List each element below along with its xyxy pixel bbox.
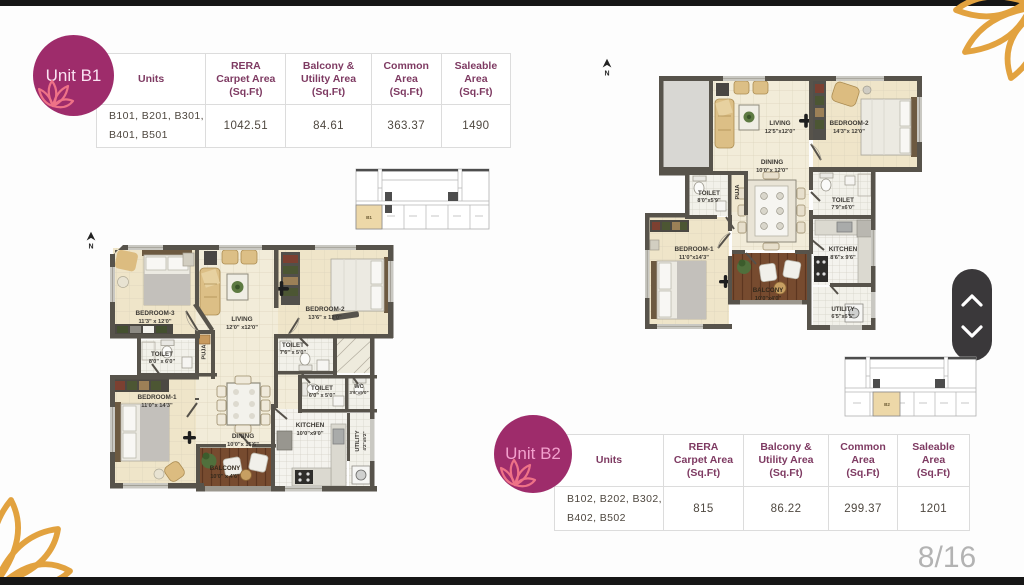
svg-text:DINING: DINING <box>232 433 254 440</box>
svg-text:BEDROOM-1: BEDROOM-1 <box>137 394 177 401</box>
svg-text:13'6" x 12'0": 13'6" x 12'0" <box>308 315 342 321</box>
svg-text:8'0"x5'9": 8'0"x5'9" <box>697 198 721 204</box>
svg-text:TOILET: TOILET <box>311 385 333 392</box>
svg-text:DINING: DINING <box>761 159 783 166</box>
svg-text:BEDROOM-2: BEDROOM-2 <box>829 120 869 127</box>
svg-text:UTILITY: UTILITY <box>355 430 361 451</box>
svg-text:10'0"x 15'6": 10'0"x 15'6" <box>227 442 259 448</box>
svg-text:BALCONY: BALCONY <box>753 287 784 294</box>
svg-text:BEDROOM-1: BEDROOM-1 <box>674 246 714 253</box>
svg-text:6'5"x6'5": 6'5"x6'5" <box>831 314 855 320</box>
svg-text:11'3" x 12'0": 11'3" x 12'0" <box>138 319 171 325</box>
svg-text:8'6"x 9'6": 8'6"x 9'6" <box>830 255 856 261</box>
svg-text:N: N <box>88 243 93 250</box>
svg-text:10'0"x4'0": 10'0"x4'0" <box>755 296 782 302</box>
svg-text:B2: B2 <box>884 402 890 407</box>
svg-text:10'0"x9'0": 10'0"x9'0" <box>296 431 323 437</box>
svg-text:TOILET: TOILET <box>151 351 173 358</box>
svg-text:10'0"x 12'0": 10'0"x 12'0" <box>756 168 788 174</box>
svg-text:N: N <box>604 70 609 77</box>
svg-text:TOILET: TOILET <box>832 197 854 204</box>
svg-text:PUJA: PUJA <box>202 345 208 360</box>
svg-text:14'3"x 12'0": 14'3"x 12'0" <box>833 129 865 135</box>
svg-text:11'0"x14'3": 11'0"x14'3" <box>679 255 709 261</box>
svg-text:KITCHEN: KITCHEN <box>296 422 325 429</box>
svg-text:6'0" x 5'0": 6'0" x 5'0" <box>309 393 336 399</box>
svg-text:7'9"x6'0": 7'9"x6'0" <box>831 205 855 211</box>
svg-text:BEDROOM-2: BEDROOM-2 <box>305 306 345 313</box>
svg-text:TOILET: TOILET <box>282 342 304 349</box>
svg-text:LIVING: LIVING <box>231 316 252 323</box>
svg-text:BEDROOM-3: BEDROOM-3 <box>135 310 175 317</box>
svg-text:3'9"x5'0": 3'9"x5'0" <box>349 390 368 395</box>
svg-text:12'0" x12'0": 12'0" x12'0" <box>226 325 258 331</box>
svg-text:KITCHEN: KITCHEN <box>829 246 858 253</box>
svg-text:10'0" x 4'6": 10'0" x 4'6" <box>210 474 240 480</box>
svg-text:7'6" x 5'0": 7'6" x 5'0" <box>280 350 307 356</box>
svg-text:TOILET: TOILET <box>698 190 720 197</box>
svg-text:B1: B1 <box>366 215 372 220</box>
svg-text:PUJA: PUJA <box>735 185 741 200</box>
svg-text:8'0" x 6'0": 8'0" x 6'0" <box>149 359 176 365</box>
svg-text:BALCONY: BALCONY <box>210 465 241 472</box>
svg-text:11'0"x 14'3": 11'0"x 14'3" <box>141 403 173 409</box>
svg-text:4'2"x5'2": 4'2"x5'2" <box>362 431 367 450</box>
svg-text:12'5"x12'0": 12'5"x12'0" <box>765 129 796 135</box>
svg-text:UTILITY: UTILITY <box>831 306 855 313</box>
svg-text:LIVING: LIVING <box>769 120 790 127</box>
